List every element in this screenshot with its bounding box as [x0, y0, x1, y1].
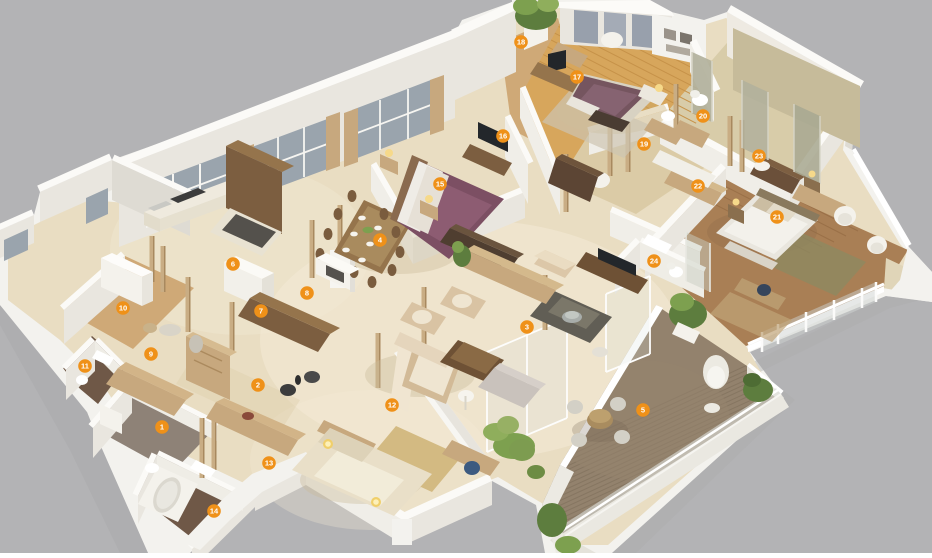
svg-text:5: 5	[641, 406, 645, 415]
svg-text:7: 7	[259, 307, 263, 316]
svg-text:13: 13	[265, 459, 273, 468]
svg-text:22: 22	[694, 182, 702, 191]
svg-text:21: 21	[773, 213, 781, 222]
svg-text:19: 19	[640, 140, 648, 149]
svg-text:11: 11	[81, 362, 89, 371]
svg-text:12: 12	[388, 401, 396, 410]
svg-text:2: 2	[256, 381, 260, 390]
svg-text:1: 1	[160, 423, 164, 432]
svg-text:24: 24	[650, 257, 659, 266]
svg-text:10: 10	[119, 304, 127, 313]
svg-text:8: 8	[305, 289, 309, 298]
svg-text:18: 18	[517, 38, 525, 47]
svg-text:17: 17	[573, 73, 581, 82]
svg-text:14: 14	[210, 507, 219, 516]
svg-text:9: 9	[149, 350, 153, 359]
svg-text:16: 16	[499, 132, 507, 141]
svg-text:6: 6	[231, 260, 235, 269]
svg-text:15: 15	[436, 180, 444, 189]
svg-text:20: 20	[699, 112, 707, 121]
svg-text:3: 3	[525, 323, 529, 332]
svg-text:23: 23	[755, 152, 763, 161]
